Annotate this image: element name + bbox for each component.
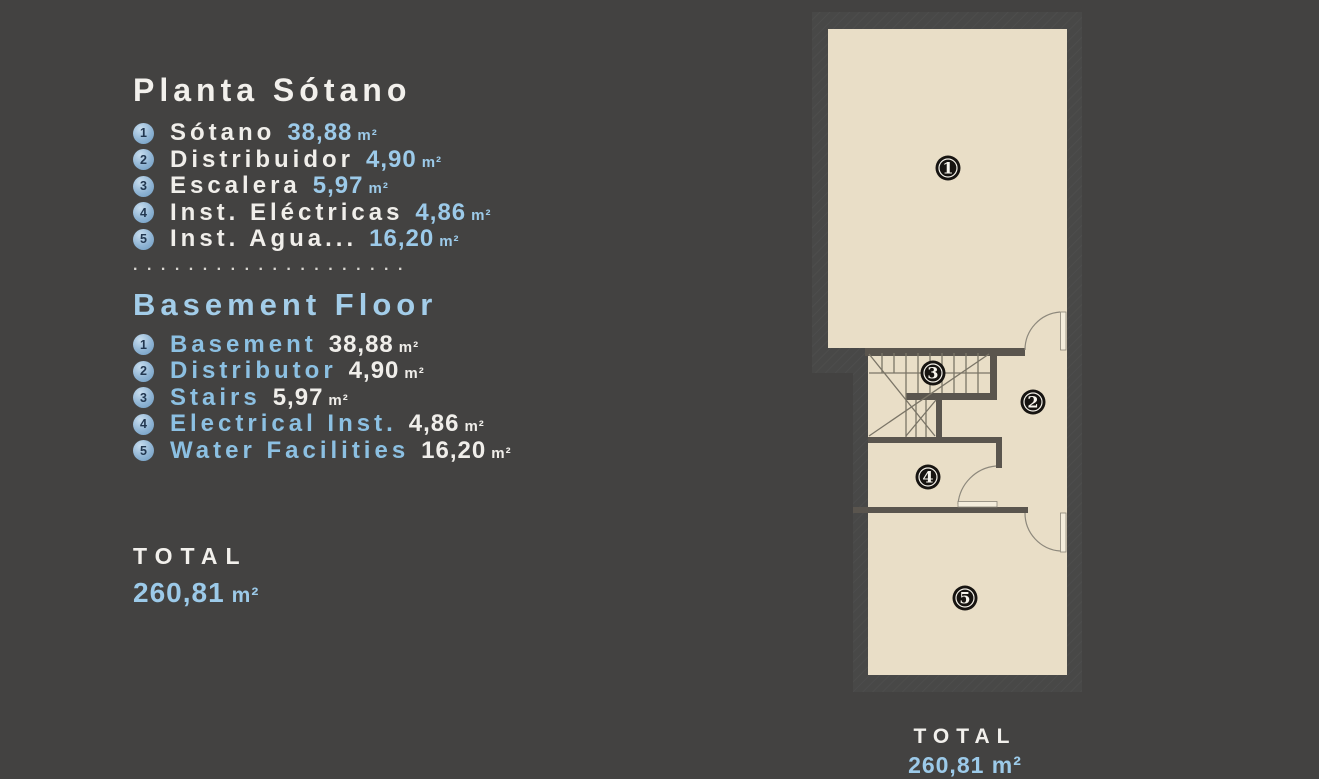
- svg-text:2: 2: [1027, 393, 1038, 412]
- english-legend-list: 1 Basement 38,88m² 2 Distributor 4,90m² …: [133, 332, 793, 465]
- total-label: TOTAL: [133, 543, 793, 570]
- legend-panel: Planta Sótano 1 Sótano 38,88m² 2 Distrib…: [133, 72, 793, 609]
- room-name: Distributor: [170, 357, 337, 385]
- item-5-badge: 5: [133, 440, 154, 461]
- area-unit: m²: [471, 207, 491, 224]
- room-1-floor-area: [828, 29, 1067, 348]
- room-name: Sótano: [170, 119, 275, 147]
- room-marker-3: 3: [921, 361, 946, 386]
- item-5-badge: 5: [133, 229, 154, 250]
- legend-row-stairs: 3 Stairs 5,97m²: [133, 385, 793, 412]
- area-unit: m²: [357, 127, 377, 144]
- floorplan-total-value-peek: 260,81 m²: [820, 752, 1110, 779]
- legend-row-basement: 1 Basement 38,88m²: [133, 332, 793, 359]
- room-area: 4,86m²: [409, 410, 485, 438]
- room-area: 4,90m²: [349, 357, 425, 385]
- room-area: 4,86m²: [415, 199, 491, 227]
- room-area: 38,88m²: [287, 119, 377, 147]
- item-4-badge: 4: [133, 414, 154, 435]
- floor-plan: 1 2 3 4 5: [800, 5, 1095, 700]
- floorplan-total-label: TOTAL: [820, 725, 1110, 749]
- room-area: 4,90m²: [366, 146, 442, 174]
- total-value: 260,81m²: [133, 577, 793, 609]
- svg-text:5: 5: [959, 589, 970, 608]
- room-area: 16,20m²: [421, 437, 511, 465]
- room-name: Escalera: [170, 172, 301, 200]
- area-unit: m²: [464, 418, 484, 435]
- door-leaf-room5: [1061, 513, 1067, 552]
- legend-row-distribuidor: 2 Distribuidor 4,90m²: [133, 147, 793, 174]
- legend-row-sotano: 1 Sótano 38,88m²: [133, 120, 793, 147]
- item-3-badge: 3: [133, 387, 154, 408]
- room-marker-1: 1: [936, 156, 961, 181]
- area-unit: m²: [439, 233, 459, 250]
- legend-row-distributor: 2 Distributor 4,90m²: [133, 358, 793, 385]
- room-marker-4: 4: [916, 465, 941, 490]
- svg-text:4: 4: [922, 468, 933, 487]
- room-name: Basement: [170, 331, 317, 359]
- item-2-badge: 2: [133, 149, 154, 170]
- room-name: Distribuidor: [170, 146, 354, 174]
- area-unit: m²: [368, 180, 388, 197]
- area-unit: m²: [328, 392, 348, 409]
- total-block: TOTAL 260,81m²: [133, 543, 793, 609]
- room-marker-5: 5: [953, 586, 978, 611]
- english-title: Basement Floor: [133, 287, 793, 323]
- area-unit: m²: [422, 154, 442, 171]
- room-marker-2: 2: [1021, 390, 1046, 415]
- item-4-badge: 4: [133, 202, 154, 223]
- room-name: Stairs: [170, 384, 261, 412]
- room-name: Electrical Inst.: [170, 410, 397, 438]
- room-area: 16,20m²: [369, 225, 459, 253]
- door-leaf-room1: [1061, 312, 1067, 350]
- area-unit: m²: [404, 365, 424, 382]
- spanish-legend-list: 1 Sótano 38,88m² 2 Distribuidor 4,90m² 3…: [133, 120, 793, 253]
- door-leaf-room4: [958, 502, 997, 508]
- legend-row-electrical-inst: 4 Electrical Inst. 4,86m²: [133, 411, 793, 438]
- svg-text:1: 1: [942, 159, 953, 178]
- item-1-badge: 1: [133, 334, 154, 355]
- legend-row-escalera: 3 Escalera 5,97m²: [133, 173, 793, 200]
- infographic-canvas: Planta Sótano 1 Sótano 38,88m² 2 Distrib…: [0, 0, 1319, 756]
- total-unit: m²: [232, 584, 260, 607]
- spanish-title: Planta Sótano: [133, 72, 793, 109]
- room-area: 5,97m²: [273, 384, 349, 412]
- svg-text:3: 3: [927, 364, 938, 383]
- room-area: 38,88m²: [329, 331, 419, 359]
- legend-row-inst-electricas: 4 Inst. Eléctricas 4,86m²: [133, 200, 793, 227]
- room-area: 5,97m²: [313, 172, 389, 200]
- dotted-separator: ....................: [133, 258, 793, 274]
- item-2-badge: 2: [133, 361, 154, 382]
- room-name: Water Facilities: [170, 437, 409, 465]
- item-1-badge: 1: [133, 123, 154, 144]
- legend-row-inst-agua: 5 Inst. Agua... 16,20m²: [133, 226, 793, 253]
- item-3-badge: 3: [133, 176, 154, 197]
- room-name: Inst. Eléctricas: [170, 199, 403, 227]
- room-name: Inst. Agua...: [170, 225, 357, 253]
- area-unit: m²: [399, 339, 419, 356]
- legend-row-water-facilities: 5 Water Facilities 16,20m²: [133, 438, 793, 465]
- area-unit: m²: [491, 445, 511, 462]
